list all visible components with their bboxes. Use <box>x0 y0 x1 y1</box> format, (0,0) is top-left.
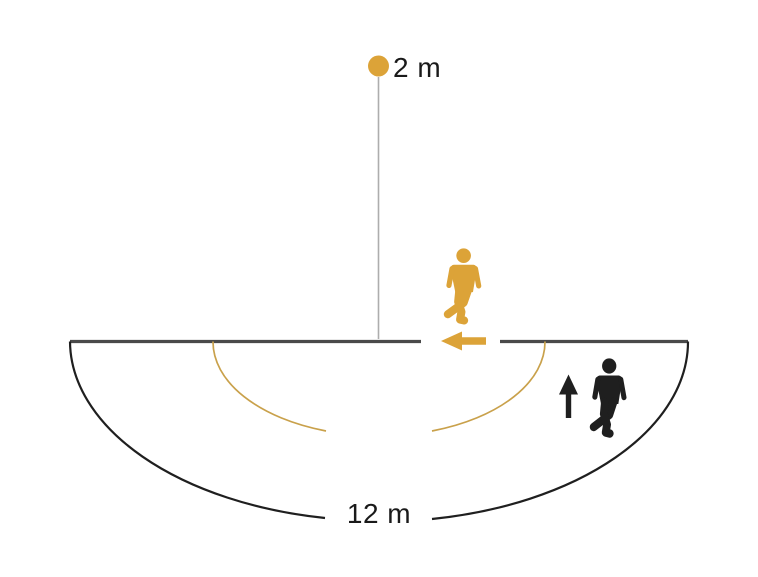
arrow-up-icon <box>559 375 578 419</box>
arrow-left-icon <box>441 332 486 351</box>
inner-range-arc-right <box>432 342 545 432</box>
outer-range-arc-right <box>432 342 688 520</box>
detection-range-label: 12 m <box>339 500 419 528</box>
walking-person-orange-icon <box>448 248 479 320</box>
inner-range-arc-left <box>213 342 326 432</box>
diagram-drawing <box>0 0 758 577</box>
mounting-height-label: 2 m <box>393 54 441 82</box>
sensor-range-diagram: 2 m 12 m <box>0 0 758 577</box>
walking-person-black-icon <box>594 358 624 433</box>
outer-range-arc-left <box>70 342 325 519</box>
sensor-dot-icon <box>368 56 389 77</box>
